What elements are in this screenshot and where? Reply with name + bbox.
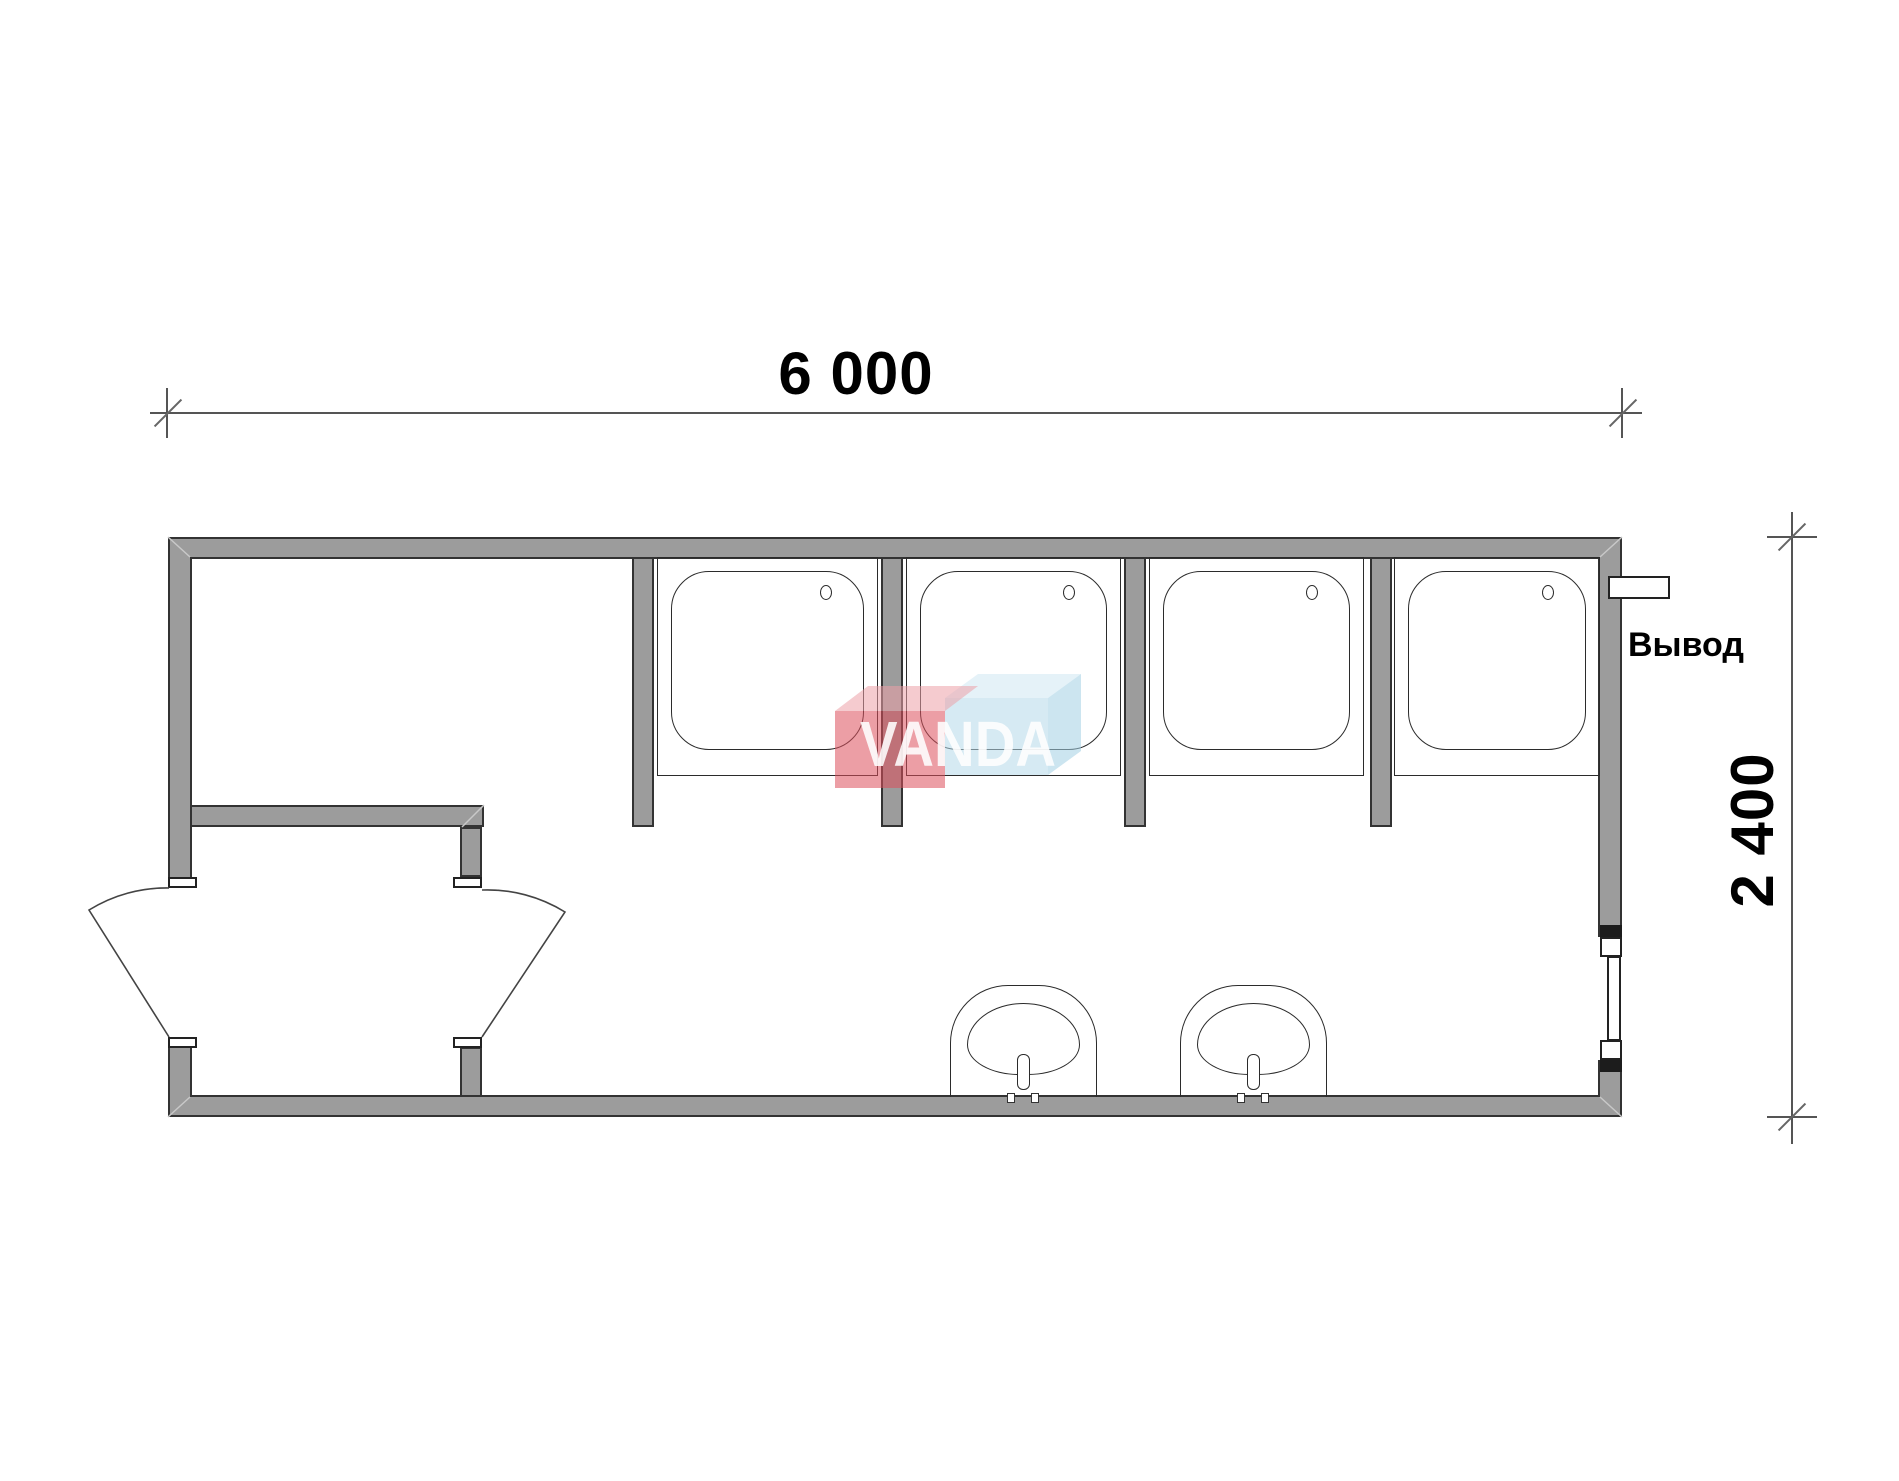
wall-end-cap bbox=[1600, 1060, 1622, 1072]
door-jamb bbox=[453, 1037, 482, 1048]
faucet-icon bbox=[1017, 1054, 1030, 1090]
shower-partition-4 bbox=[1370, 557, 1392, 827]
vestibule-wall-return-lower bbox=[460, 1047, 482, 1097]
exterior-door-opening bbox=[165, 888, 193, 1037]
wall-end-cap bbox=[1600, 925, 1622, 937]
door-jamb bbox=[168, 877, 197, 888]
window-frame-top bbox=[1600, 937, 1622, 957]
shower-drain-icon bbox=[1306, 585, 1318, 600]
window-glazing bbox=[1607, 956, 1621, 1041]
door-jamb bbox=[453, 877, 482, 888]
shower-tray-4 bbox=[1408, 571, 1586, 750]
window-frame-bottom bbox=[1600, 1040, 1622, 1060]
outlet-label: Вывод bbox=[1628, 628, 1744, 662]
dimension-label-width: 6 000 bbox=[756, 344, 956, 404]
dimension-label-height: 2 400 bbox=[1723, 752, 1783, 907]
shower-tray-3 bbox=[1163, 571, 1350, 750]
shower-drain-icon bbox=[1063, 585, 1075, 600]
shower-drain-icon bbox=[1542, 585, 1554, 600]
vanda-watermark: VANDA bbox=[830, 668, 1086, 796]
shower-partition-1 bbox=[632, 557, 654, 827]
vestibule-wall-return-upper bbox=[460, 827, 482, 877]
shower-drain-icon bbox=[820, 585, 832, 600]
watermark-text: VANDA bbox=[845, 712, 1070, 776]
building-outline bbox=[168, 537, 1622, 1117]
floor-plan-canvas: 6 000 2 400 bbox=[0, 0, 1899, 1481]
vestibule-wall-horizontal bbox=[190, 805, 484, 827]
faucet-icon bbox=[1247, 1054, 1260, 1090]
outlet-stub bbox=[1608, 576, 1670, 599]
dimension-line-vertical bbox=[1791, 512, 1793, 1144]
door-jamb bbox=[168, 1037, 197, 1048]
dimension-line-horizontal bbox=[150, 412, 1642, 414]
shower-partition-3 bbox=[1124, 557, 1146, 827]
exterior-door-leaf bbox=[89, 888, 169, 1037]
